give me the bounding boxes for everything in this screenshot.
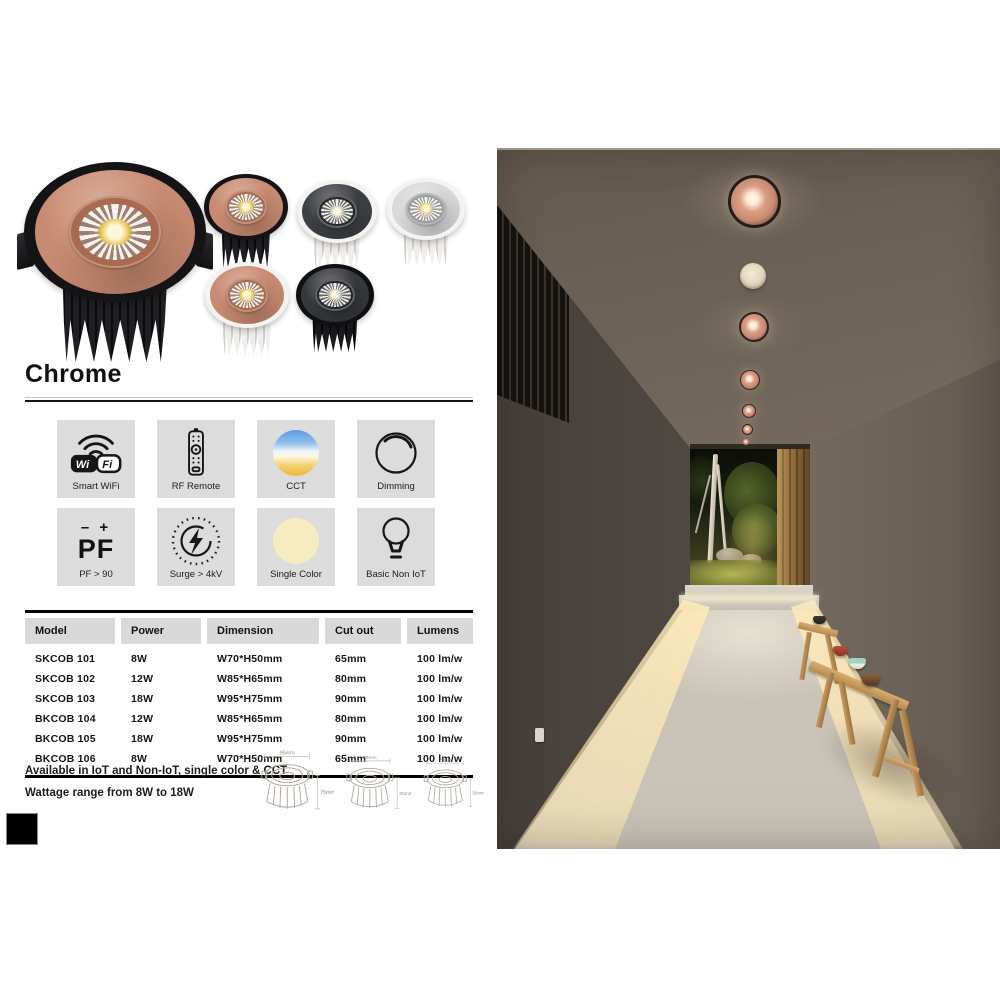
svg-text:85mm: 85mm	[363, 755, 376, 761]
spec-cell: 65mm	[325, 648, 401, 668]
note-line: Available in IoT and Non-IoT, single col…	[25, 760, 287, 782]
ceramic-bowl-red	[833, 646, 848, 656]
application-photo-corridor	[497, 148, 1000, 849]
wifi-icon: Wi Fi	[57, 425, 135, 481]
spec-cell: 80mm	[325, 668, 401, 688]
spec-header-row: Model Power Dimension Cut out Lumens	[25, 618, 473, 644]
spec-cell: 18W	[121, 688, 201, 708]
surge-protection-icon	[157, 513, 235, 569]
feature-smart-wifi: Wi Fi Smart WiFi	[57, 420, 135, 498]
spec-cell: 100 lm/w	[407, 688, 473, 708]
spec-row: SKCOB 102 12W W85*H65mm 80mm 100 lm/w	[25, 668, 473, 688]
photo-top-edge	[497, 148, 1000, 150]
datasheet-page: Chrome Wi Fi Smart WiFi	[0, 0, 1000, 1000]
single-color-icon	[257, 513, 335, 569]
spec-row: BKCOB 104 12W W85*H65mm 80mm 100 lm/w	[25, 708, 473, 728]
feature-single-color: Single Color	[257, 508, 335, 586]
downlight-chrome-white	[387, 178, 465, 266]
product-gallery	[18, 152, 480, 358]
feature-label: Single Color	[270, 569, 322, 580]
svg-text:Fi: Fi	[102, 459, 113, 471]
feature-label: CCT	[286, 481, 306, 492]
spec-row: BKCOB 105 18W W95*H75mm 90mm 100 lm/w	[25, 728, 473, 748]
bezel-ring	[296, 264, 374, 326]
bezel-ring	[24, 162, 206, 302]
rf-remote-icon	[157, 425, 235, 481]
downlight-black-black	[296, 264, 374, 352]
spec-cell: 12W	[121, 708, 201, 728]
spec-cell: BKCOB 104	[25, 708, 115, 728]
feature-dimming: Dimming	[357, 420, 435, 498]
smoke-detector	[740, 263, 766, 289]
ceramic-bowl-black	[813, 616, 826, 624]
bench-leg	[816, 672, 834, 728]
ceiling-downlight-4	[742, 404, 756, 418]
spec-cell: 18W	[121, 728, 201, 748]
spec-row: SKCOB 103 18W W95*H75mm 90mm 100 lm/w	[25, 688, 473, 708]
svg-text:65mm: 65mm	[399, 791, 412, 797]
spec-cell: W85*H65mm	[207, 668, 319, 688]
spec-header-cell: Dimension	[207, 618, 319, 644]
dimension-drawing-70mm: 70mm 50mm	[416, 757, 484, 821]
spec-cell: 90mm	[325, 728, 401, 748]
spec-cell: 100 lm/w	[407, 668, 473, 688]
garden-view	[690, 448, 777, 588]
svg-text:70mm: 70mm	[439, 757, 452, 762]
downlight-rose-gold-black-large	[24, 162, 206, 362]
spec-cell: SKCOB 101	[25, 648, 115, 668]
spec-cell: 90mm	[325, 688, 401, 708]
note-line: Wattage range from 8W to 18W	[25, 782, 287, 804]
feature-cct: CCT	[257, 420, 335, 498]
spec-header-cell: Lumens	[407, 618, 473, 644]
svg-text:95mm: 95mm	[280, 750, 295, 756]
spec-cell: W95*H75mm	[207, 728, 319, 748]
spec-cell: 100 lm/w	[407, 648, 473, 668]
bezel-ring	[387, 178, 465, 240]
spec-cell: W70*H50mm	[207, 648, 319, 668]
feature-grid: Wi Fi Smart WiFi RF R	[57, 420, 435, 586]
spec-cell: W95*H75mm	[207, 688, 319, 708]
dimming-dial-icon	[357, 425, 435, 481]
power-factor-icon: – + PF	[57, 513, 135, 569]
feature-rf-remote: RF Remote	[157, 420, 235, 498]
feature-surge: Surge > 4kV	[157, 508, 235, 586]
ceiling-downlight-5	[742, 424, 753, 435]
dimension-drawings: 95mm 75mm 85mm 65mm 70mm 50mm	[252, 749, 484, 826]
opening-lintel	[690, 444, 810, 449]
spec-cell: 100 lm/w	[407, 708, 473, 728]
spec-cell: 100 lm/w	[407, 728, 473, 748]
spec-cell: 80mm	[325, 708, 401, 728]
spec-header-cell: Cut out	[325, 618, 401, 644]
dimension-drawing-85mm: 85mm 65mm	[338, 754, 412, 824]
dimension-drawing-95mm: 95mm 75mm	[252, 749, 334, 826]
cct-gradient-icon	[257, 425, 335, 481]
ceramic-bowl-brown	[861, 674, 880, 686]
ceiling-downlight-2	[739, 312, 769, 342]
bezel-ring	[205, 262, 289, 328]
ceramic-bowl-teal	[849, 658, 866, 669]
title-divider	[25, 397, 473, 402]
spec-header-cell: Model	[25, 618, 115, 644]
garden-uplight-glow	[726, 510, 777, 580]
downlight-black-white	[297, 180, 377, 270]
trim-face	[35, 170, 195, 293]
feature-label: Surge > 4kV	[170, 569, 223, 580]
reflector-cone	[79, 204, 152, 260]
spec-cell: 12W	[121, 668, 201, 688]
feature-pf: – + PF PF > 90	[57, 508, 135, 586]
ceiling-downlight-3	[740, 370, 760, 390]
bezel-ring	[204, 174, 288, 240]
spec-cell: SKCOB 102	[25, 668, 115, 688]
feature-label: Smart WiFi	[73, 481, 120, 492]
svg-text:50mm: 50mm	[472, 790, 484, 795]
page-title: Chrome	[25, 360, 122, 389]
bulb-icon	[357, 513, 435, 569]
feature-label: PF > 90	[79, 569, 113, 580]
downlight-rose-gold-black	[204, 174, 288, 268]
ceiling-downlight-6	[743, 439, 749, 445]
led-strip-glow-step	[681, 595, 817, 601]
wooden-bench-display	[792, 610, 967, 835]
spec-header-cell: Power	[121, 618, 201, 644]
svg-text:75mm: 75mm	[320, 790, 334, 796]
feature-label: Basic Non IoT	[366, 569, 426, 580]
availability-notes: Available in IoT and Non-IoT, single col…	[25, 760, 287, 805]
inner-ring	[69, 196, 162, 267]
svg-text:Wi: Wi	[76, 459, 90, 471]
bezel-ring	[297, 180, 377, 243]
downlight-rose-gold-white	[205, 262, 289, 356]
spec-cell: BKCOB 105	[25, 728, 115, 748]
spec-cell: 8W	[121, 648, 201, 668]
stool-leg	[799, 632, 811, 680]
spec-cell: SKCOB 103	[25, 688, 115, 708]
ceiling-downlight-1	[728, 175, 781, 228]
wall-socket	[535, 728, 544, 742]
spec-cell: W85*H65mm	[207, 708, 319, 728]
feature-basic-non-iot: Basic Non IoT	[357, 508, 435, 586]
feature-label: Dimming	[377, 481, 414, 492]
page-corner-mark	[6, 813, 38, 845]
entry-step	[685, 585, 813, 595]
spec-row: SKCOB 101 8W W70*H50mm 65mm 100 lm/w	[25, 648, 473, 668]
led-chip	[98, 219, 131, 245]
feature-label: RF Remote	[172, 481, 221, 492]
wood-door-frame	[777, 448, 810, 588]
